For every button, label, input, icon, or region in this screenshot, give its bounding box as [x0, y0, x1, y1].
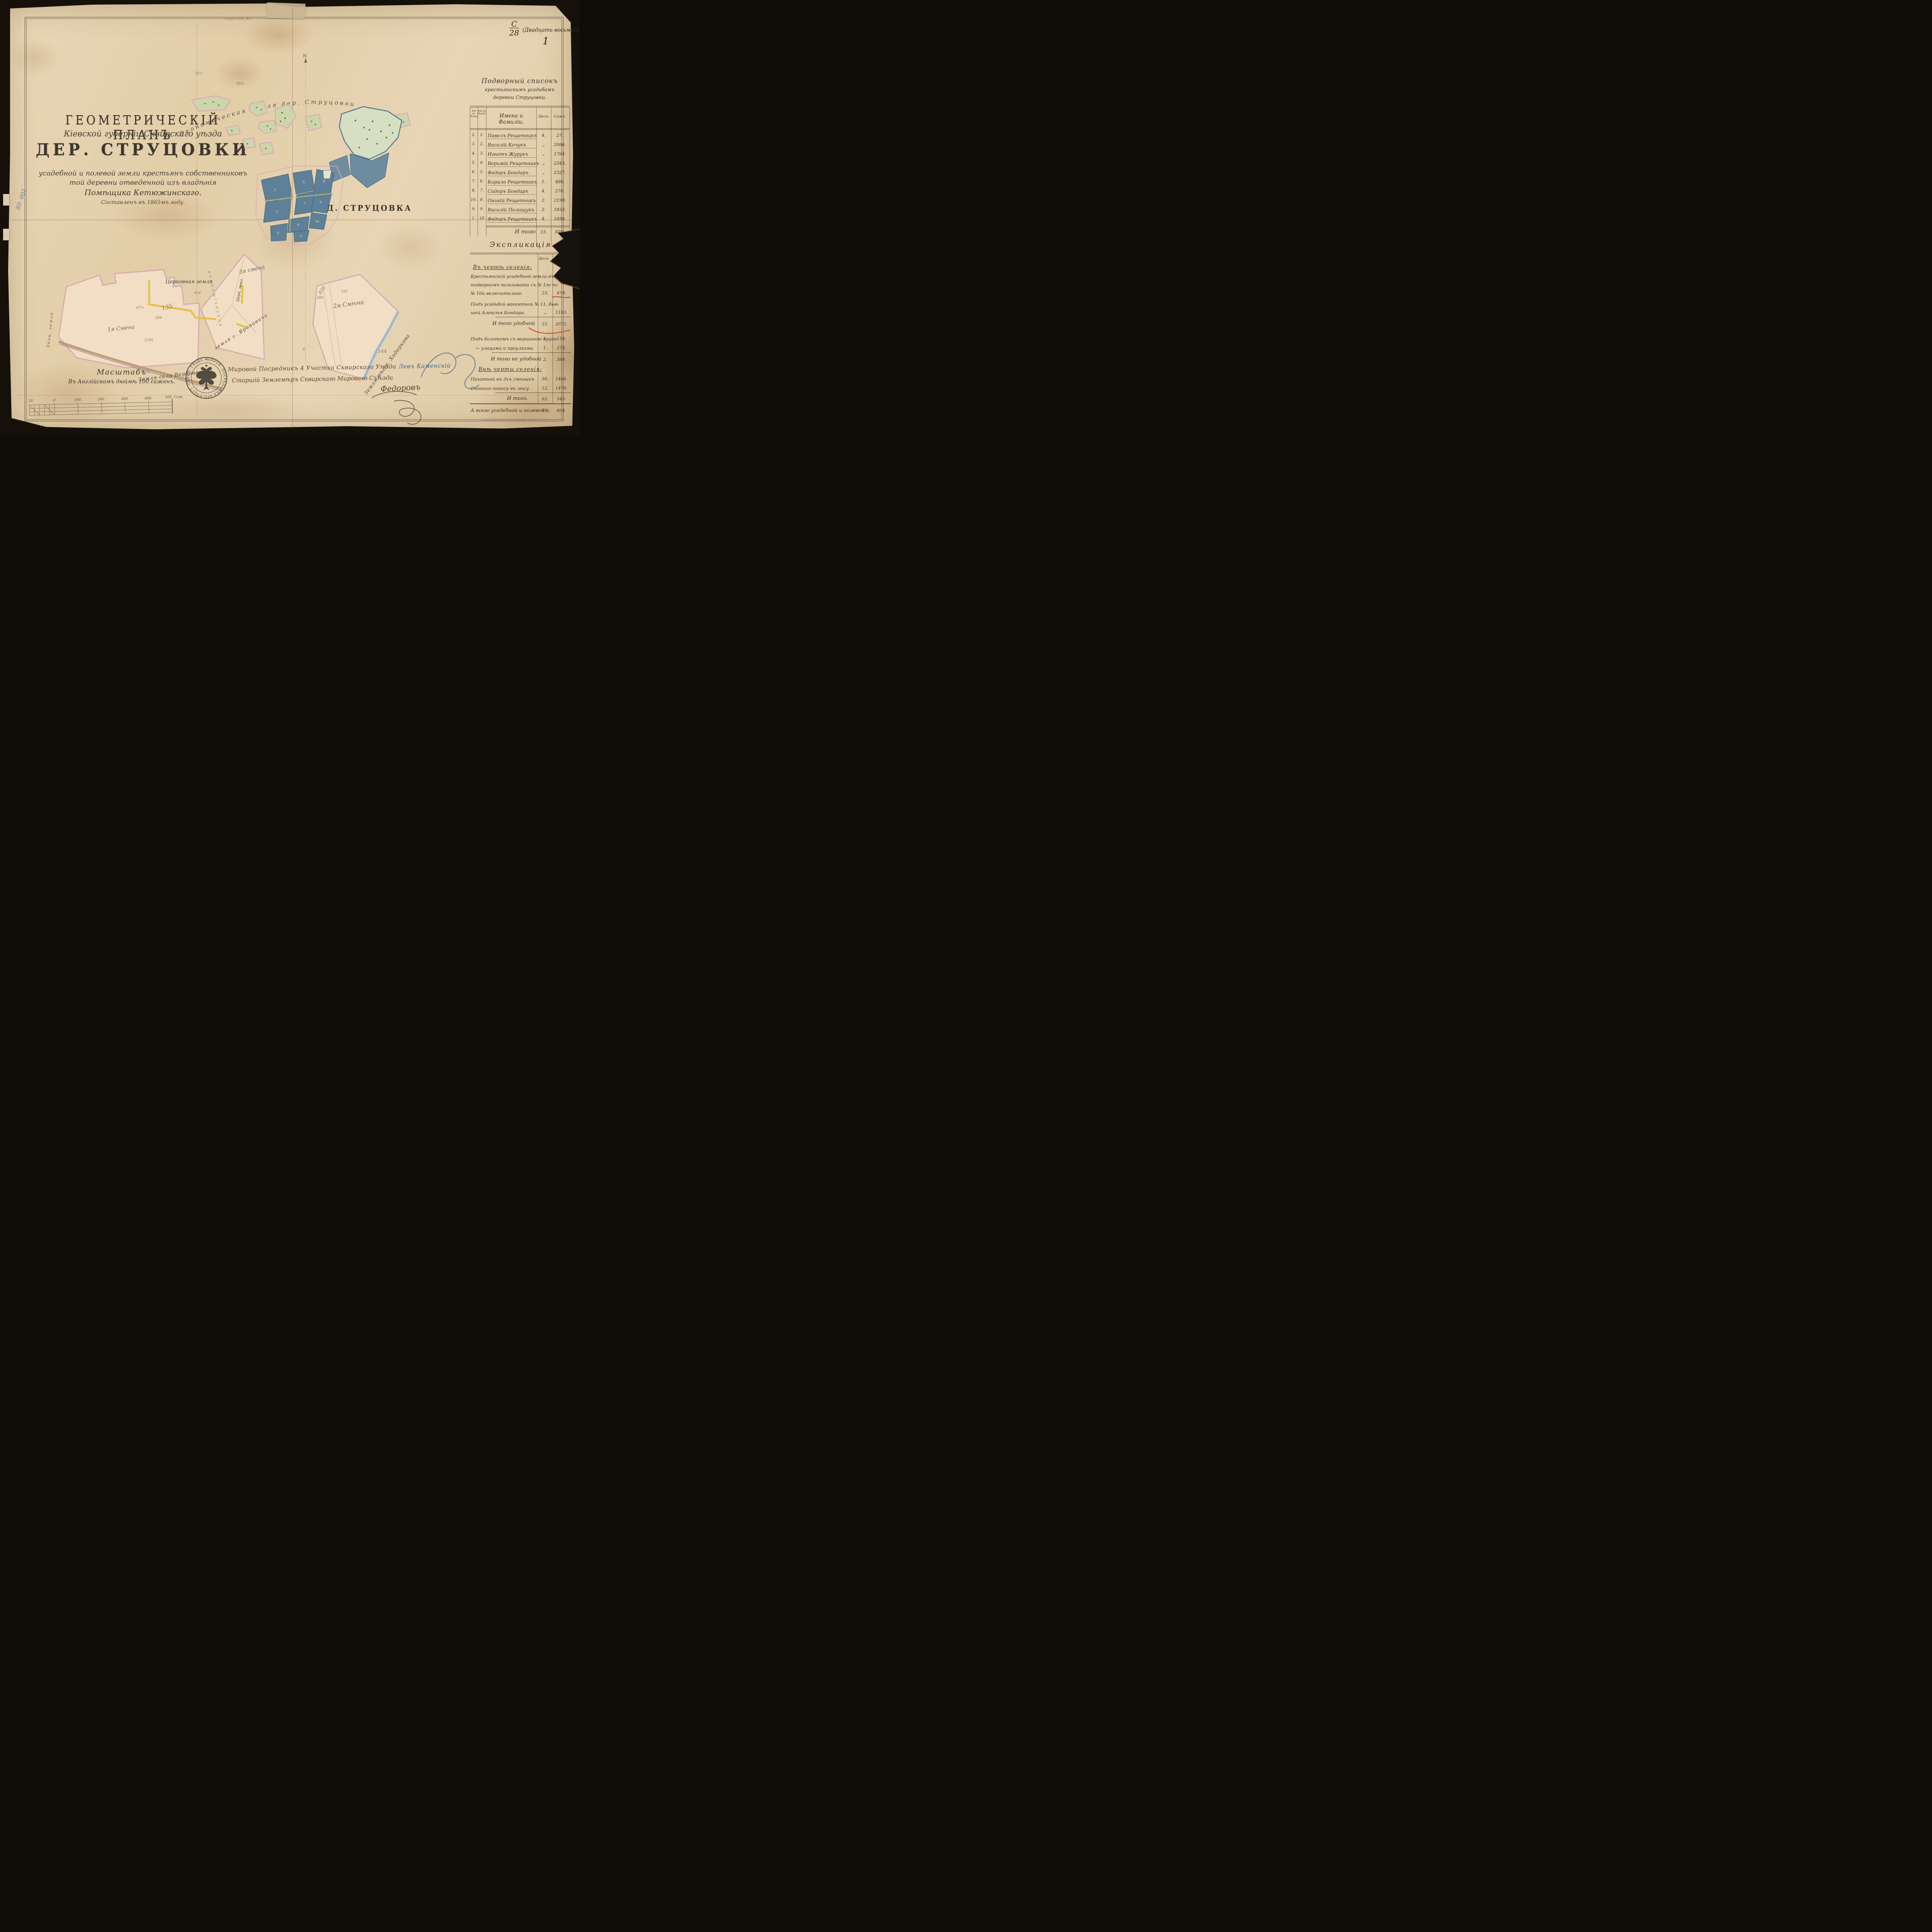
cell-saj: 2327. [551, 170, 569, 175]
expl-value-des: „ [538, 310, 552, 315]
cell-des: „ [536, 170, 551, 175]
table-row: 7.6.Кирило Рещетникъ1.480. [470, 178, 570, 187]
scale-tick: 300. [121, 397, 129, 401]
cell-saj: 27. [551, 133, 569, 138]
expl-value-saj: 1464. [553, 376, 570, 381]
expl-pencil-saj: 23. [553, 417, 570, 422]
cell-order: 4. [478, 161, 486, 165]
expl-subtotal-label: И того удобной [492, 321, 535, 327]
cell-order: 1. [478, 133, 486, 137]
cell-saj: 1764. [551, 151, 569, 156]
cell-saj: 2199. [551, 198, 569, 203]
cell-des: 2. [536, 198, 551, 203]
cell-name: Кирило Рещетникъ [488, 179, 536, 185]
cell-plan: 2. [470, 133, 478, 137]
roster-subtitle-2: деревни Струцовки. [470, 94, 570, 100]
roster-col-plan: №№ по Плану. [470, 110, 478, 118]
expl-pencil-label: усадебной и полевой земли [481, 417, 541, 422]
scale-tick: 400. [144, 396, 152, 400]
cell-plan: 1. [470, 216, 478, 221]
plot-number: 3 [299, 235, 301, 238]
cell-saj: 2343. [551, 161, 569, 166]
expl-subtotal-label: И того. [507, 396, 528, 401]
roster-col-order: №№ по Поряд. [478, 110, 486, 115]
map-annotation: 418 [194, 291, 201, 295]
cell-plan: 9. [470, 207, 478, 211]
expl-value-des: 1. [538, 345, 552, 350]
cell-saj: 2086. [551, 142, 569, 147]
cell-name: Федоръ Бондаръ [488, 170, 536, 175]
expl-value-saj: 116. [553, 336, 570, 341]
cell-order: 5. [478, 170, 486, 174]
scale-tick: 0 [53, 399, 56, 403]
cell-name: Василій Полищукъ [488, 207, 536, 213]
cell-plan: 5. [470, 161, 478, 165]
cell-des: „ [536, 151, 551, 156]
roster-col-des: Деся. [536, 114, 551, 119]
cell-plan: 4. [470, 151, 478, 156]
cell-des: 4. [536, 216, 551, 221]
table-row: 9.9.Василій Полищукъ2.1833. [470, 206, 570, 215]
expl-value-des: 1. [538, 336, 552, 341]
village-block-white [323, 170, 332, 179]
cell-des: 4. [536, 189, 551, 194]
table-row: 5.4.Веримій Рещетникъ„2343. [470, 159, 570, 168]
table-row: 8.7.Сидоръ Бондаръ4.270. [470, 187, 570, 196]
compass-north-label: N [303, 53, 307, 58]
cell-des: „ [536, 161, 551, 166]
official-seal: МИРОВ. ПОСРЕДНИКА 4ГО УЧАСТ. СКВИР. УѢЗД… [184, 355, 229, 400]
roster-total-label: И того [505, 229, 536, 235]
cell-order: 10 [478, 216, 486, 221]
table-row: 1.10Федоръ Рещетникъ4.1950. [470, 215, 570, 224]
expl-pencil-des: 1— [538, 417, 552, 422]
expl-value-des: 12. [538, 386, 552, 391]
expl-value-saj: 879. [553, 291, 570, 296]
cell-des: 4. [536, 133, 551, 138]
cell-plan: 10. [470, 198, 478, 202]
cell-saj: 480. [551, 179, 569, 184]
cell-plan: 3. [470, 142, 478, 146]
cell-name: Павелъ Рещетникъ [488, 133, 536, 138]
cell-saj: 270. [551, 189, 569, 194]
cell-order: 8. [478, 198, 486, 202]
expl-value-des: 89. [538, 408, 552, 413]
expl-row-line: № 10й включительно. [471, 291, 523, 296]
table-row: 10.8.Оникій Рещетникъ2.2199. [470, 196, 570, 206]
cell-des: 2. [536, 207, 551, 212]
table-row: 6.5.Федоръ Бондаръ„2327. [470, 168, 570, 178]
expl-row-line: Крестьянской усадебной земли въ [471, 274, 554, 279]
scale-tick: 20 [28, 399, 33, 403]
cell-name: Игнатъ Журукъ [488, 151, 536, 157]
compass-arrow-icon [304, 58, 307, 63]
cell-plan: 8. [470, 189, 478, 193]
expl-value-saj: 273. [553, 345, 570, 350]
cell-name: Федоръ Рещетникъ [488, 216, 536, 222]
cell-order: 6. [478, 179, 486, 184]
roster-col-saj: Саже. [551, 114, 569, 119]
map-annotation: 144 [378, 349, 387, 354]
map-annotation: 326 [341, 290, 347, 294]
cell-saj: 1833. [551, 207, 569, 212]
plot-number: 5 [303, 180, 304, 184]
cell-order: 2. [478, 142, 486, 146]
scale-tick: 500. Саж. [165, 395, 184, 400]
cell-saj: 1950. [551, 216, 569, 221]
map-annotation: 206 [155, 316, 162, 320]
signature-flourish [367, 386, 433, 429]
cell-name: Василій Кочукъ [488, 142, 536, 148]
cell-des: „ [536, 142, 551, 147]
expl-row-line: подворномъ пользованіи съ № 1го по [471, 282, 558, 287]
expl-subtotal-label: И того не удобной [491, 356, 541, 362]
scale-title: Масштабъ [66, 368, 178, 376]
table-row: 4.3.Игнатъ Журукъ„1764. [470, 150, 570, 159]
scale-subtitle: Въ Англійскомъ дюймѣ 100 саженъ. [46, 379, 197, 385]
cell-order: 9. [478, 207, 486, 211]
expl-value-des: 23. [538, 291, 552, 296]
cell-des: 1. [536, 179, 551, 184]
cell-plan: 7. [470, 179, 478, 184]
expl-value-des: 2. [538, 357, 552, 362]
roster-subtitle: крестьянскимъ усадьбамъ [470, 87, 570, 92]
expl-value-saj: 389. [553, 357, 570, 362]
compass-south-mark: 8 [303, 348, 305, 352]
table-row: 3.2.Василій Кочукъ„2086. [470, 141, 570, 150]
red-arc-mark [527, 326, 572, 336]
plot-number: 10 [315, 220, 319, 223]
map-annotation: 2195 [145, 338, 153, 342]
red-underline-mark [551, 296, 571, 299]
cell-name: Оникій Рещетникъ [488, 198, 536, 203]
double-eagle-icon [196, 365, 217, 390]
map-annotation: 286 [317, 296, 323, 300]
cell-plan: 6. [470, 170, 478, 174]
expl-value-saj: 1193. [553, 310, 570, 315]
plot-number: 6 [277, 231, 279, 235]
roster-col-names: Имена и Фамиліи. [486, 113, 536, 125]
expl-value-saj: 604. [553, 408, 570, 413]
cell-order: 7. [478, 189, 486, 193]
scale-tick: 100. [74, 398, 82, 402]
expl-value-des: 63. [538, 396, 552, 401]
section-label: Въ чертѣ селенія: [473, 264, 532, 270]
map-annotation: 76½ [195, 72, 202, 76]
plot-number: 8 [323, 180, 325, 183]
cell-name: Веримій Рещетникъ [488, 161, 536, 166]
map-annotation: 47½ [136, 306, 144, 310]
cell-order: 3. [478, 151, 486, 156]
cell-name: Сидоръ Бондаръ [488, 189, 536, 194]
household-roster-table: Подворный списокъ крестьянскимъ усадьбам… [470, 77, 570, 240]
plot-number: 4 [297, 223, 299, 226]
table-row: 2.1.Павелъ Рещетникъ4.27. [470, 131, 570, 141]
village-name-label: Д. СТРУЦОВКА [327, 204, 412, 213]
plot-number: 1 [274, 188, 276, 192]
roster-total-des: 23. [536, 230, 551, 235]
expl-value-saj: 1479. [553, 386, 570, 391]
plot-number: 9 [320, 201, 321, 204]
church-land-label: Церковная земля [165, 279, 213, 285]
expl-value-des: 50. [538, 376, 552, 381]
expl-row-line: шей Алексѣя Бондара. [471, 310, 525, 315]
expl-row-line: Подъ усадьбой вакантной № 11, быв- [471, 301, 559, 307]
expl-value-saj: 543. [553, 396, 570, 401]
map-annotation: 90¼ [236, 82, 244, 86]
roster-title: Подворный списокъ [470, 77, 570, 85]
plot-number: 2 [275, 210, 277, 213]
scale-bar: 20 0 100. 200. 300. 400. 500. Саж. [21, 395, 184, 423]
scanned-map-page: С 28 (Двадцать восьмой) 1 планъ дер. № 1… [0, 0, 580, 436]
explication-col-des: Деся. [539, 257, 549, 261]
scale-tick: 200. [97, 398, 105, 401]
